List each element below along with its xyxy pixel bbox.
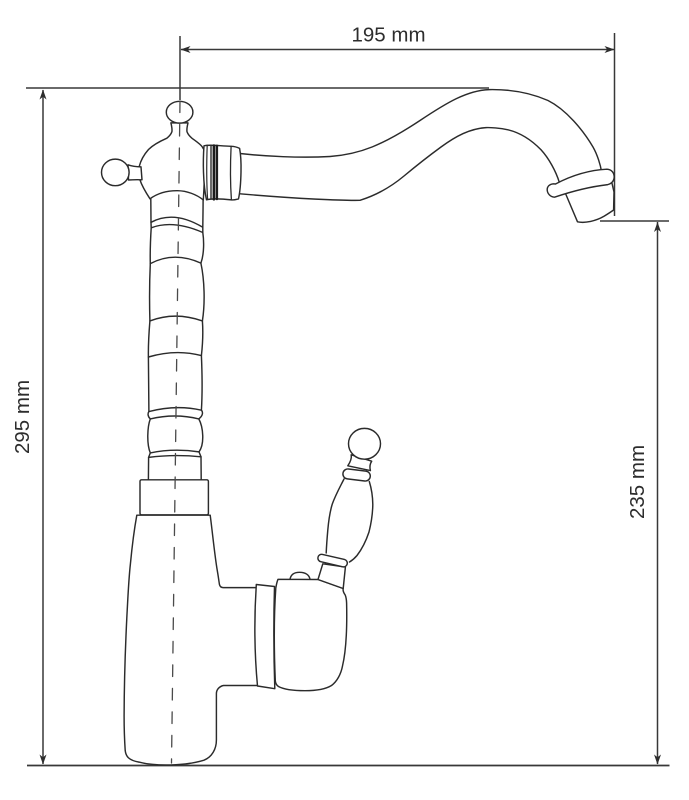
svg-text:295 mm: 295 mm: [11, 380, 34, 454]
svg-text:235 mm: 235 mm: [626, 445, 649, 519]
svg-text:195 mm: 195 mm: [351, 23, 425, 46]
